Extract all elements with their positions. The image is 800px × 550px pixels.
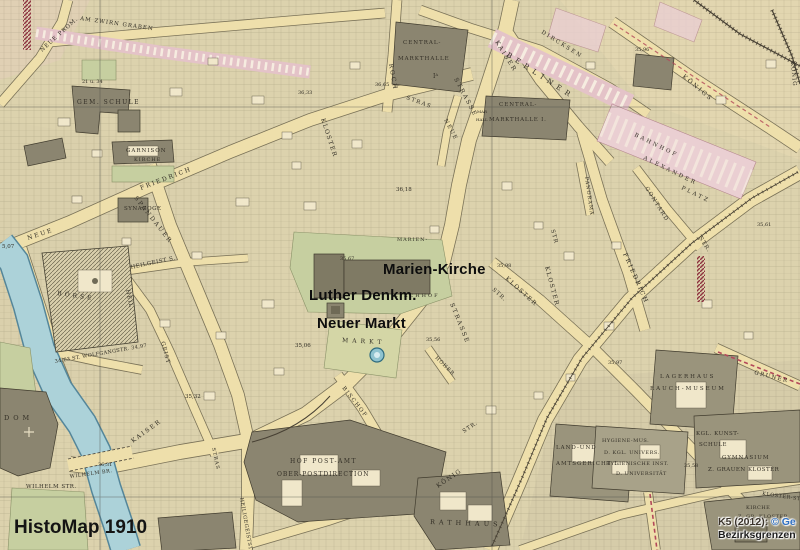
map-label: RAUCH-MUSEUM bbox=[650, 386, 726, 392]
map-label: KIRCHE bbox=[746, 505, 770, 511]
map-label: GARNISON bbox=[126, 148, 167, 154]
map-label: Iᴬ bbox=[433, 73, 438, 80]
map-label: 36,18 bbox=[396, 187, 412, 193]
map-label: 35,56 bbox=[426, 337, 440, 343]
map-label: 35,67 bbox=[340, 256, 354, 262]
map-label: 35,61 bbox=[757, 222, 771, 228]
map-label: MAR bbox=[477, 109, 488, 114]
attribution-source-line: K5 (2012): © Ge bbox=[718, 516, 800, 529]
map-label: KIRCHE bbox=[134, 157, 161, 163]
map-label: 35,98 bbox=[497, 263, 511, 269]
map-label: CENTRAL- bbox=[499, 102, 537, 108]
map-marker-label-lutherdenkmal: Luther Denkm. bbox=[309, 287, 417, 304]
attribution-link[interactable]: © Ge bbox=[771, 516, 796, 528]
map-label: KGL. KUNST- bbox=[696, 431, 739, 437]
attribution-layer-label: Bezirksgrenzen bbox=[718, 529, 800, 542]
map-label: 21 u. 34 bbox=[82, 79, 103, 85]
map-label: 36,65 bbox=[375, 82, 389, 88]
gymnasium-building bbox=[694, 410, 800, 488]
map-label: Z. GRAUEN KLOSTER bbox=[708, 467, 780, 473]
map-attribution: K5 (2012): © Ge Bezirksgrenzen bbox=[718, 516, 800, 542]
attribution-source-label: K5 (2012): bbox=[718, 516, 771, 528]
map-label: MARKTHALLE bbox=[398, 56, 450, 62]
map-label: CENTRAL- bbox=[403, 40, 441, 46]
map-marker-label-neuermarkt: Neuer Markt bbox=[317, 315, 406, 332]
map-label: HYGIENISCHE INST. bbox=[606, 461, 669, 467]
app-title: HistoMap 1910 bbox=[14, 517, 147, 539]
map-label: MARIEN- bbox=[397, 237, 428, 243]
map-label: SCHULE bbox=[699, 442, 727, 448]
map-label: OBER-POSTDIRECTION bbox=[277, 471, 370, 478]
map-label: 35,06 bbox=[295, 343, 311, 349]
district-boundary bbox=[697, 256, 705, 302]
map-label: 35,97 bbox=[608, 360, 622, 366]
hygiene-museum-building bbox=[592, 426, 688, 494]
map-label: SYNAGOGE bbox=[124, 206, 162, 212]
map-label: LAND-UND bbox=[556, 445, 597, 451]
map-label: HOF POST-AMT bbox=[290, 458, 357, 465]
map-label: WILHELM STR. bbox=[26, 484, 77, 490]
map-label: GYMNASIUM bbox=[722, 455, 770, 461]
map-marker-label-marienkirche: Marien-Kirche bbox=[383, 261, 486, 278]
histomap-viewer: AM ZWIRN GRABEN NEUE PROM. GEM. SCHULE 2… bbox=[0, 0, 800, 550]
map-label: MARKTHALLE I. bbox=[489, 117, 547, 123]
map-label: DOM bbox=[4, 414, 33, 422]
district-boundary bbox=[23, 0, 31, 50]
map-label: 35,32 bbox=[185, 394, 201, 400]
map-label: LAGERHAUS bbox=[660, 374, 715, 380]
map-label: 35,58 bbox=[684, 463, 698, 469]
map-label: D. KGL. UNIVERS. bbox=[604, 450, 660, 456]
map-label: HYGIENE-MUS. bbox=[602, 438, 649, 444]
map-label: GEM. SCHULE bbox=[77, 99, 140, 106]
map-label: 5,07 bbox=[2, 244, 15, 250]
map-label: 36,33 bbox=[298, 90, 312, 96]
map-label: HALL bbox=[476, 117, 488, 122]
map-label: D. UNIVERSITÄT bbox=[616, 470, 667, 477]
map-label: 35,96 bbox=[635, 47, 649, 53]
map-label: 36,31 bbox=[98, 462, 112, 468]
